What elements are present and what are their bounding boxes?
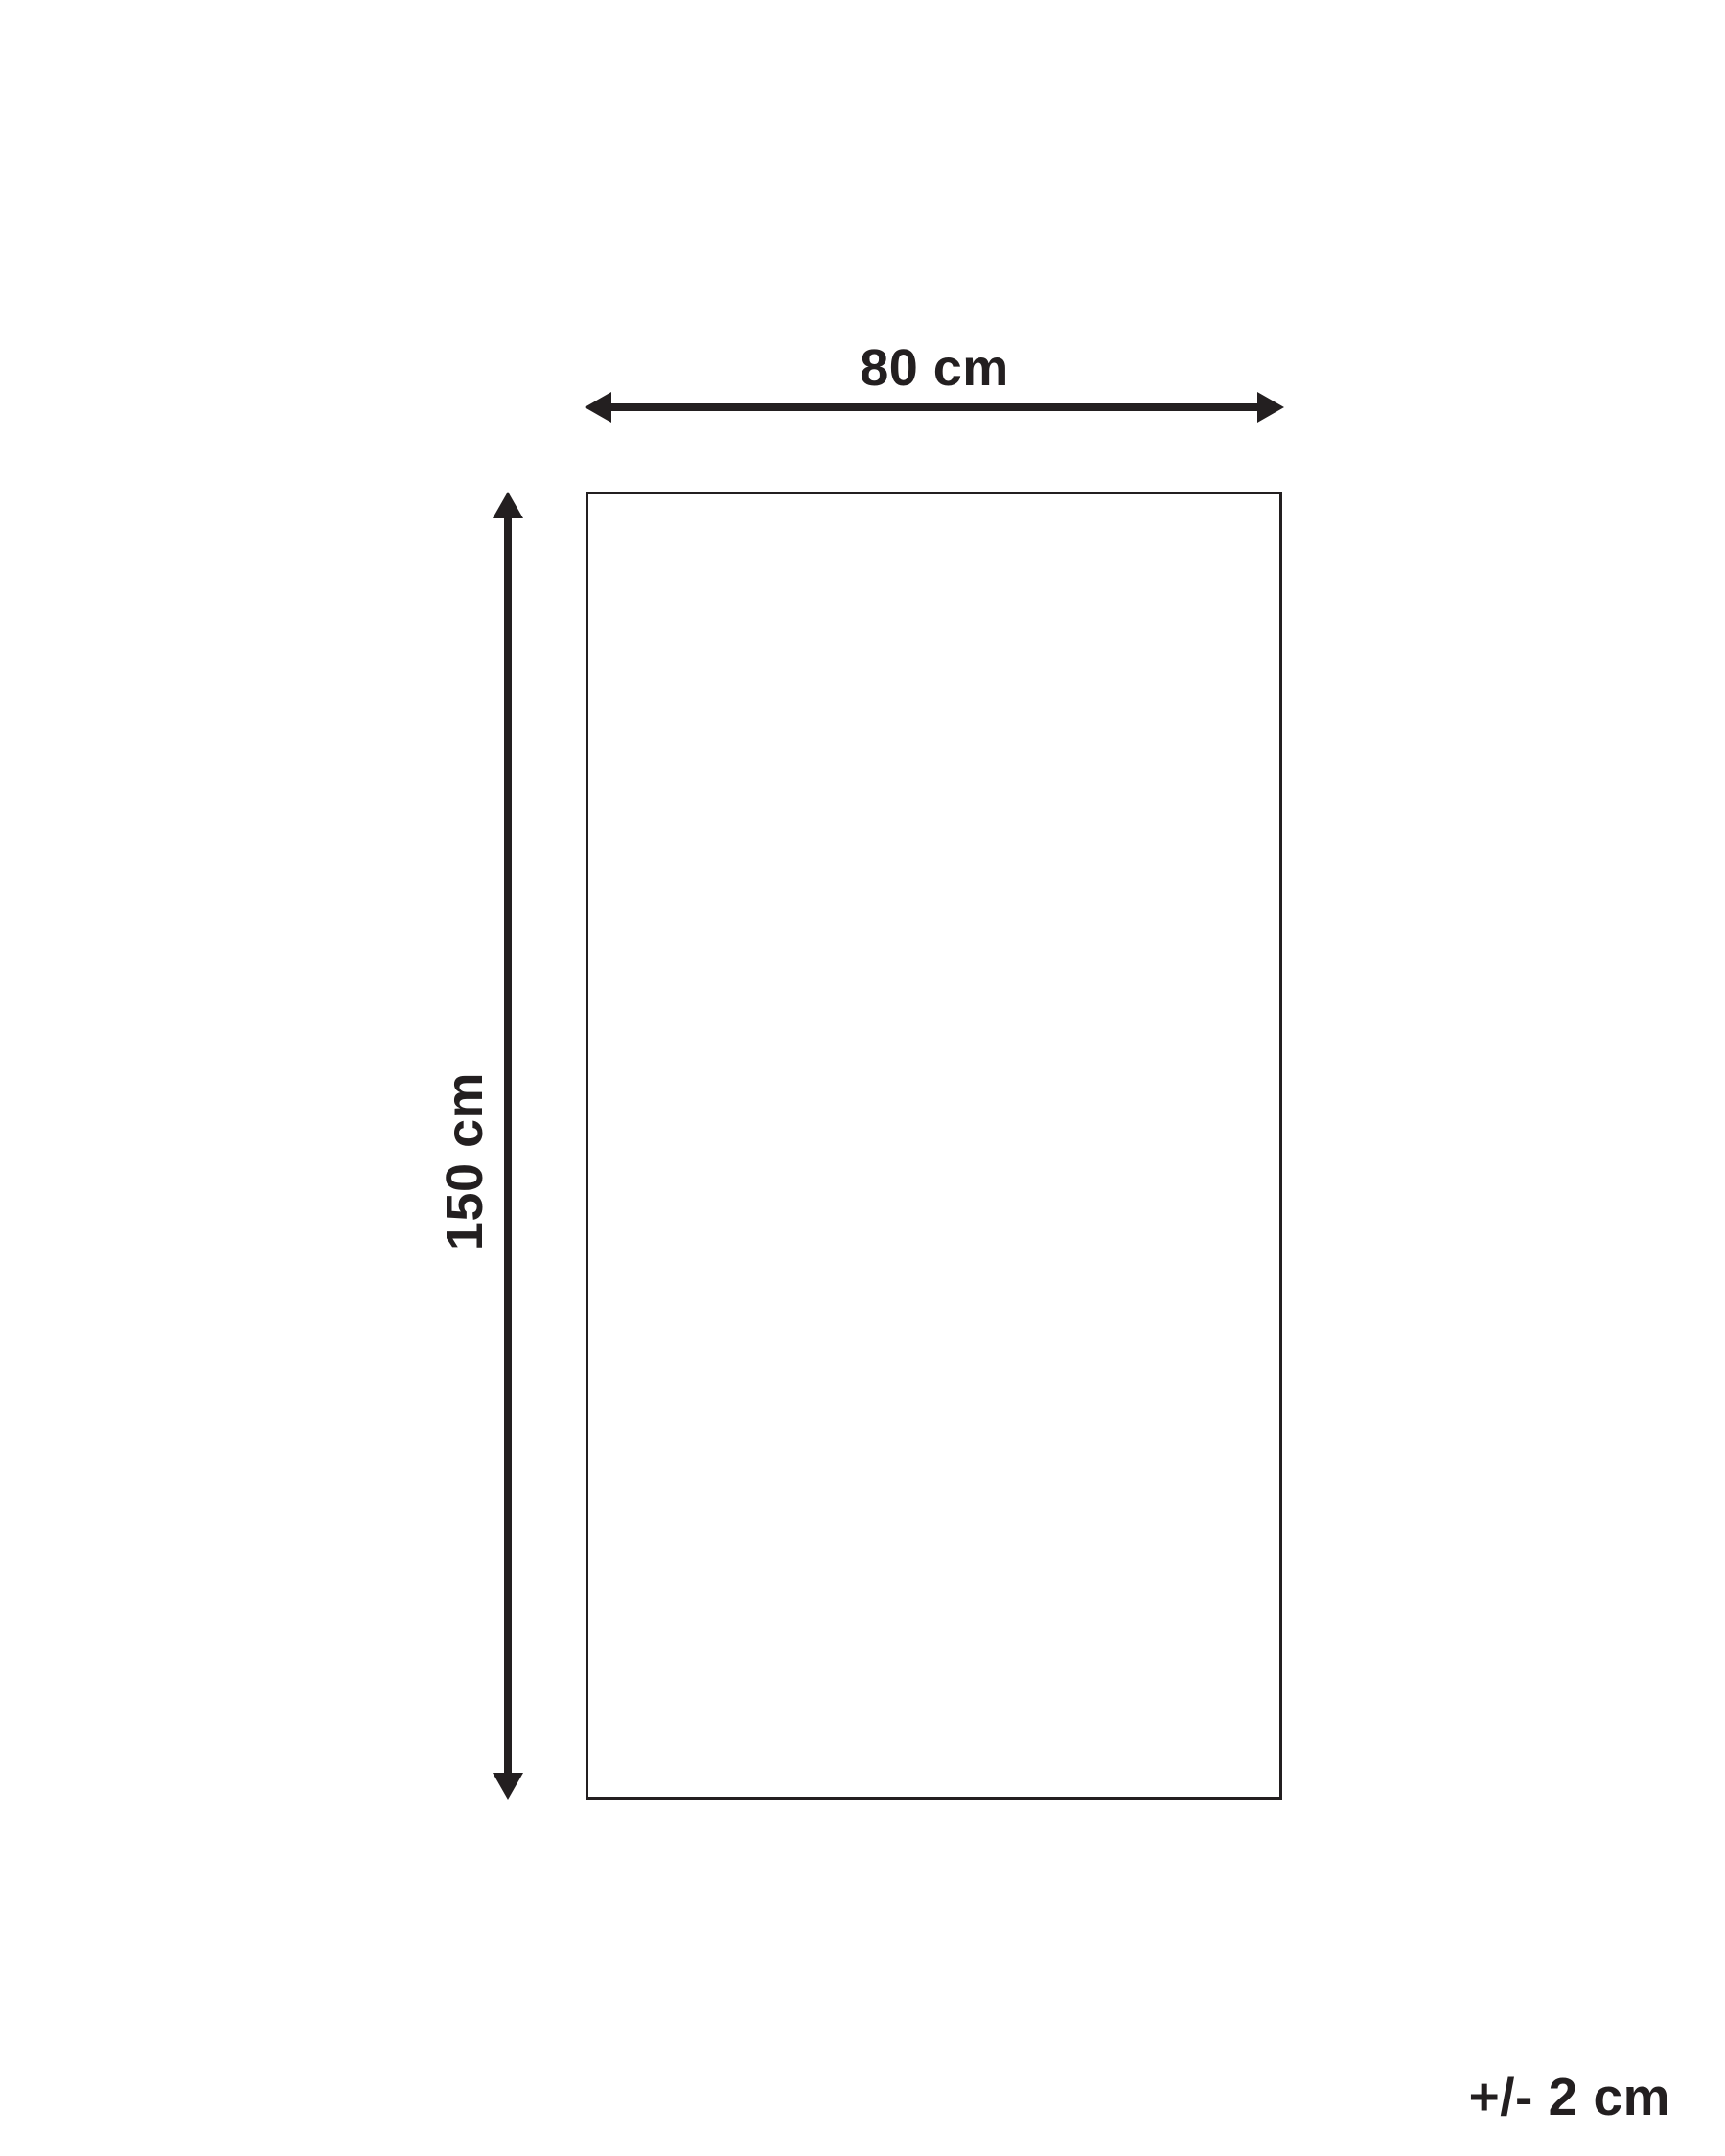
arrowhead-down-icon [493, 1773, 523, 1800]
height-arrow-shaft [504, 513, 512, 1778]
arrowhead-right-icon [1257, 392, 1284, 423]
dimension-diagram: 80 cm 150 cm +/- 2 cm [0, 0, 1725, 2156]
width-label: 80 cm [585, 342, 1284, 394]
tolerance-label: +/- 2 cm [1469, 2071, 1670, 2123]
height-label: 150 cm [439, 1072, 491, 1250]
width-arrow-shaft [606, 403, 1263, 411]
height-dimension-arrow [493, 492, 523, 1800]
product-outline-rectangle [586, 492, 1282, 1800]
